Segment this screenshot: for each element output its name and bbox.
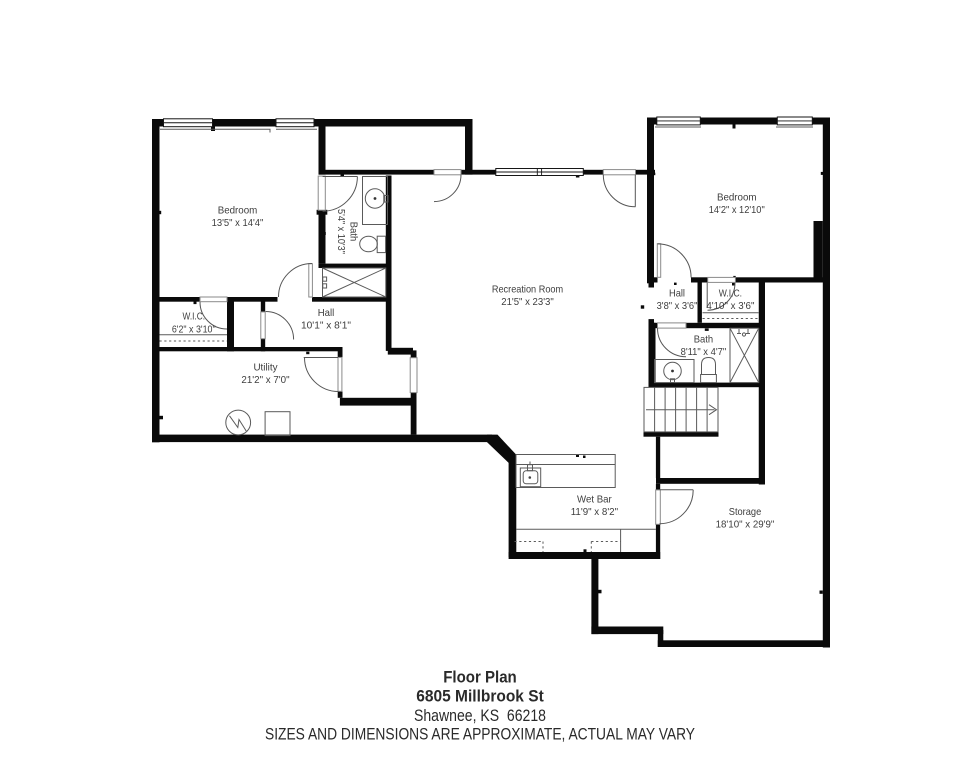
svg-text:Storage: Storage — [729, 507, 762, 518]
svg-text:21'5" x 23'3": 21'5" x 23'3" — [501, 297, 554, 308]
svg-text:6805 Millbrook St: 6805 Millbrook St — [416, 687, 544, 706]
svg-text:4'10" x 3'6": 4'10" x 3'6" — [706, 301, 754, 312]
svg-text:Hall: Hall — [318, 308, 335, 319]
svg-text:Bedroom: Bedroom — [717, 192, 757, 203]
svg-text:3'8" x 3'6": 3'8" x 3'6" — [657, 301, 698, 312]
svg-text:8'11" x 4'7": 8'11" x 4'7" — [681, 347, 727, 358]
svg-text:W.I.C.: W.I.C. — [183, 312, 206, 323]
svg-text:Bedroom: Bedroom — [218, 205, 258, 216]
svg-text:Floor Plan: Floor Plan — [443, 668, 517, 687]
svg-text:14'2" x 12'10": 14'2" x 12'10" — [709, 205, 765, 216]
svg-text:Wet Bar: Wet Bar — [577, 494, 612, 505]
svg-text:10'1" x 8'1": 10'1" x 8'1" — [301, 321, 351, 332]
svg-text:Hall: Hall — [669, 288, 685, 299]
svg-text:11'9" x 8'2": 11'9" x 8'2" — [571, 507, 619, 518]
svg-text:13'5" x 14'4": 13'5" x 14'4" — [212, 218, 264, 229]
svg-text:6'2" x 3'10": 6'2" x 3'10" — [172, 324, 216, 335]
svg-text:5'4" x 10'3": 5'4" x 10'3" — [335, 209, 346, 254]
svg-text:Utility: Utility — [253, 362, 278, 373]
svg-text:Shawnee, KS 66218: Shawnee, KS 66218 — [414, 706, 546, 725]
svg-text:21'2" x 7'0": 21'2" x 7'0" — [241, 375, 290, 386]
svg-text:W.I.C.: W.I.C. — [719, 288, 742, 299]
svg-text:SIZES AND DIMENSIONS ARE APPRO: SIZES AND DIMENSIONS ARE APPROXIMATE, AC… — [265, 725, 695, 744]
svg-text:Bath: Bath — [348, 222, 359, 241]
svg-text:Recreation Room: Recreation Room — [492, 284, 563, 295]
svg-text:18'10" x 29'9": 18'10" x 29'9" — [716, 520, 775, 531]
svg-text:Bath: Bath — [694, 334, 713, 345]
